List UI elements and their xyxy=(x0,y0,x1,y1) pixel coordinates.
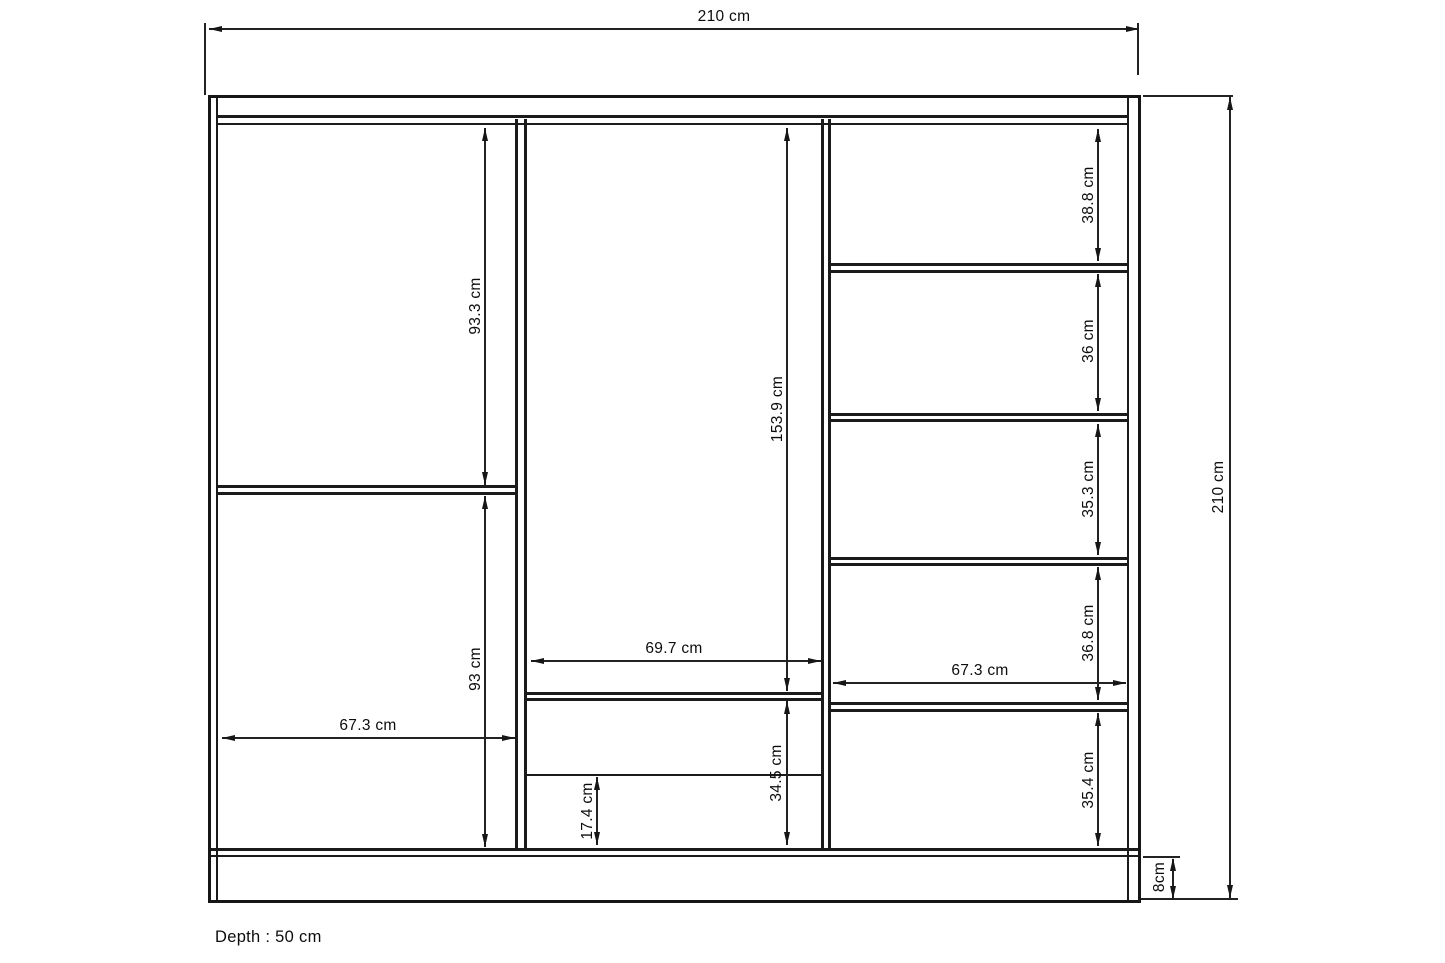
dim-overall-height-line xyxy=(1229,97,1231,898)
partition-middle-right-line-1 xyxy=(821,119,824,848)
dim-right-cell2-label: 36 cm xyxy=(1079,281,1099,401)
dim-right-cell3-label: 35.3 cm xyxy=(1079,429,1099,549)
dim-middle-width-arrow-right xyxy=(808,658,821,664)
bottom-panel-line-2 xyxy=(211,855,1138,857)
dim-right-cell1-label: 38.8 cm xyxy=(1079,135,1099,255)
dim-middle-hanging-arrow-bottom xyxy=(784,678,790,691)
wardrobe-outline xyxy=(208,95,1141,903)
dim-plinth-arrow-top xyxy=(1170,858,1176,871)
dim-left-upper-arrow-bottom xyxy=(482,472,488,485)
dim-left-width-line xyxy=(222,737,515,739)
partition-left-middle-line-2 xyxy=(524,119,527,848)
dim-middle-width-arrow-left xyxy=(531,658,544,664)
dim-left-lower-arrow-bottom xyxy=(482,834,488,847)
dim-right-width-line xyxy=(833,682,1126,684)
top-panel-inner-line-2 xyxy=(218,123,1127,125)
dim-left-width-label: 67.3 cm xyxy=(308,716,428,736)
right-shelf-3-line-2 xyxy=(831,563,1127,566)
partition-left-middle-line-1 xyxy=(515,119,518,848)
middle-shelf-line-2 xyxy=(527,698,821,701)
right-shelf-4-line-1 xyxy=(831,702,1127,705)
dim-left-lower-arrow-top xyxy=(482,496,488,509)
dim-overall-height-ext-top xyxy=(1143,95,1233,97)
dim-middle-hanging-arrow-top xyxy=(784,128,790,141)
dim-left-width-arrow-left xyxy=(222,735,235,741)
dim-overall-height-arrow-bottom xyxy=(1227,885,1233,898)
right-side-panel-inner-line xyxy=(1127,98,1129,900)
dim-plinth-arrow-bottom xyxy=(1170,886,1176,899)
right-shelf-4-line-2 xyxy=(831,709,1127,712)
dim-overall-width-label: 210 cm xyxy=(664,7,784,27)
dim-right-width-label: 67.3 cm xyxy=(920,661,1040,681)
left-side-panel-inner-line xyxy=(216,98,218,900)
right-shelf-2-line-2 xyxy=(831,419,1127,422)
dim-middle-width-line xyxy=(531,660,821,662)
dim-right-cell4-label: 36.8 cm xyxy=(1079,573,1099,693)
dim-overall-width-ext-left xyxy=(204,23,206,95)
depth-note: Depth : 50 cm xyxy=(215,928,322,947)
dim-left-upper-arrow-top xyxy=(482,128,488,141)
dim-overall-height-label: 210 cm xyxy=(1209,427,1229,547)
dim-overall-height-arrow-top xyxy=(1227,97,1233,110)
dim-overall-width-ext-right xyxy=(1137,23,1139,75)
right-shelf-1-line-1 xyxy=(831,263,1127,266)
partition-middle-right-line-2 xyxy=(828,119,831,848)
right-shelf-2-line-1 xyxy=(831,413,1127,416)
wardrobe-dimension-diagram: 210 cm 210 cm 8cm 93.3 cm 93 cm 67.3 cm … xyxy=(0,0,1445,963)
dim-overall-width-line xyxy=(209,28,1139,30)
dim-left-upper-label: 93.3 cm xyxy=(466,246,486,366)
bottom-panel-line-1 xyxy=(211,848,1138,851)
middle-shelf-line-1 xyxy=(527,692,821,695)
right-shelf-3-line-1 xyxy=(831,557,1127,560)
dim-middle-width-label: 69.7 cm xyxy=(614,639,734,659)
dim-right-width-arrow-left xyxy=(833,680,846,686)
dim-plinth-label: 8cm xyxy=(1150,817,1170,937)
dim-right-cell5-label: 35.4 cm xyxy=(1079,720,1099,840)
top-panel-inner-line-1 xyxy=(218,115,1127,118)
dim-middle-drawer-total-label: 34.5 cm xyxy=(767,713,787,833)
dim-middle-drawer-total-arrow-bottom xyxy=(784,832,790,845)
dim-left-lower-label: 93 cm xyxy=(466,609,486,729)
dim-overall-width-arrow-left xyxy=(209,26,222,32)
dim-middle-hanging-label: 153.9 cm xyxy=(768,349,788,469)
dim-middle-drawer-lower-label: 17.4 cm xyxy=(578,751,598,871)
right-shelf-1-line-2 xyxy=(831,270,1127,273)
left-shelf-line-2 xyxy=(218,492,515,495)
dim-right-width-arrow-right xyxy=(1113,680,1126,686)
dim-left-width-arrow-right xyxy=(502,735,515,741)
left-shelf-line-1 xyxy=(218,485,515,488)
